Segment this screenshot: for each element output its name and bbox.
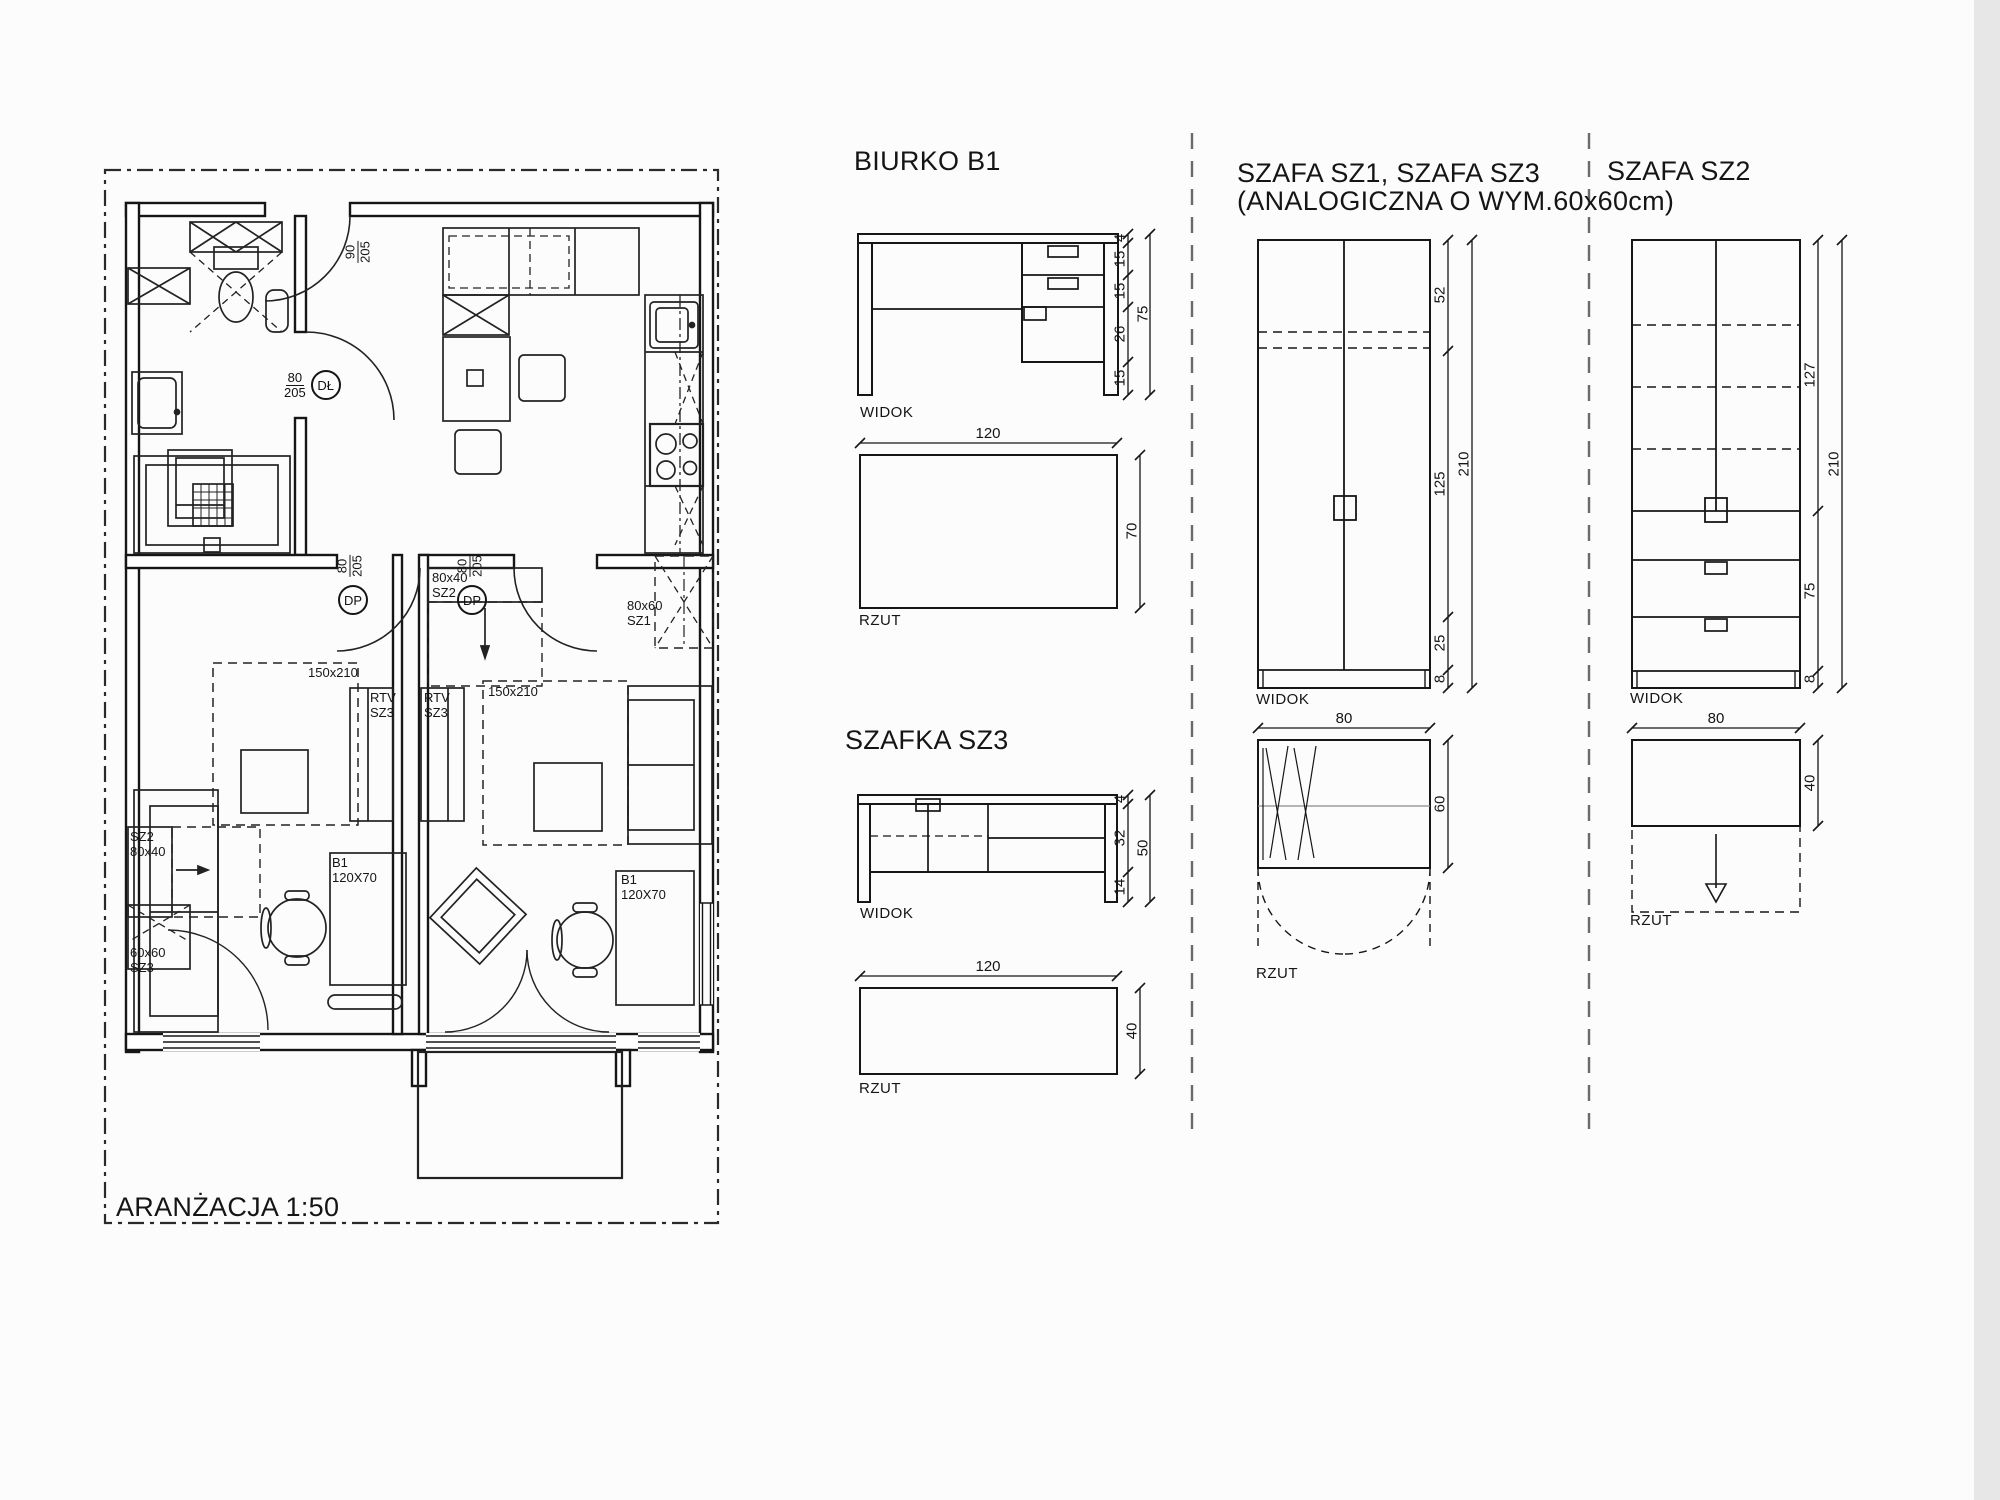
left-room-furniture — [128, 450, 406, 1032]
szafka-widok — [858, 795, 1117, 902]
window-left-room — [163, 1033, 260, 1051]
szafa1-title-line1: SZAFA SZ1, SZAFA SZ3 — [1237, 158, 1540, 188]
szafa2-h0: 127 — [1802, 362, 1819, 387]
biurko-depth-dim: 70 — [1124, 523, 1141, 540]
szafa2-widok — [1632, 240, 1800, 688]
szafka-h0: 4 — [1112, 795, 1129, 803]
desk-left-label: B1 120X70 — [332, 855, 377, 885]
walls — [126, 203, 713, 1086]
cabinet-sz3-line2: SZ3 — [130, 960, 165, 975]
szafa1-h1: 125 — [1432, 471, 1449, 496]
desk-right-label: B1 120X70 — [621, 872, 666, 902]
szafa1-total-height: 210 — [1456, 451, 1473, 476]
entry-door-height: 205 — [358, 241, 373, 263]
wardrobe-sz1-line1: 80x60 — [627, 598, 662, 613]
drawing-sheet: 90 205 80 205 DŁ 80 205 DP 80 205 DP RTV… — [0, 0, 2000, 1500]
szafa2-rzut — [1632, 740, 1800, 912]
desk-left-line2: 120X70 — [332, 870, 377, 885]
bed-right-label: 150x210 — [488, 684, 538, 699]
bathroom-door-size: 80 205 — [284, 371, 306, 400]
cabinet-sz3-line1: 60x60 — [130, 945, 165, 960]
bathroom-door-label: 80 205 DŁ — [284, 370, 341, 400]
dimension-lines — [860, 234, 1842, 1074]
left-room-door-code: DP — [338, 585, 368, 615]
biurko-h4: 15 — [1112, 370, 1129, 387]
szafa1-h2: 25 — [1432, 635, 1449, 652]
bathroom-door-width: 80 — [286, 371, 304, 386]
szafka-depth-dim: 40 — [1124, 1023, 1141, 1040]
cabinet-sz3-left-label: 60x60 SZ3 — [130, 945, 165, 975]
szafa2-depth-dim: 40 — [1802, 775, 1819, 792]
biurko-view-label: WIDOK — [860, 405, 913, 421]
right-room-door-height: 205 — [470, 555, 485, 577]
left-room-door-height: 205 — [350, 555, 365, 577]
szafa2-title: SZAFA SZ2 — [1607, 156, 1751, 186]
szafka-total-height: 50 — [1135, 840, 1152, 857]
rtv-left-line1: RTV — [370, 690, 396, 705]
szafa2-h1: 75 — [1802, 583, 1819, 600]
right-room-furniture — [421, 556, 713, 1005]
szafka-h2: 14 — [1112, 879, 1129, 896]
biurko-h1: 15 — [1112, 251, 1129, 268]
scan-edge-band — [1974, 0, 2000, 1500]
bathroom-door-height: 205 — [284, 386, 306, 400]
szafka-rzut — [860, 988, 1117, 1074]
szafa1-title-line2: (ANALOGICZNA O WYM.60x60cm) — [1237, 186, 1674, 216]
szafa2-width-dim: 80 — [1708, 710, 1725, 727]
szafka-plan-label: RZUT — [859, 1081, 901, 1097]
wardrobe-sz2-left-label: SZ2 80x40 — [130, 829, 165, 859]
szafa2-total-height: 210 — [1826, 451, 1843, 476]
wardrobe-sz2-left-line2: 80x40 — [130, 844, 165, 859]
biurko-h3: 26 — [1112, 326, 1129, 343]
window-right-room-bottom — [638, 1033, 700, 1051]
window-balcony-door — [426, 1033, 616, 1051]
biurko-rzut — [860, 455, 1117, 608]
desk-left-line1: B1 — [332, 855, 377, 870]
rtv-left-line2: SZ3 — [370, 705, 396, 720]
szafa1-rzut — [1258, 740, 1430, 954]
rtv-cabinet-left-label: RTV SZ3 — [370, 690, 396, 720]
szafka-view-label: WIDOK — [860, 906, 913, 922]
szafa2-view-label: WIDOK — [1630, 691, 1683, 707]
dimension-ticks — [855, 229, 1847, 1079]
shelf-sz2-label: 80x40 SZ2 — [432, 570, 467, 600]
biurko-widok — [858, 234, 1118, 395]
wardrobe-sz2-left-line1: SZ2 — [130, 829, 165, 844]
balcony — [418, 1052, 622, 1178]
szafka-title: SZAFKA SZ3 — [845, 725, 1009, 755]
entry-door-label: 90 205 — [344, 241, 373, 263]
biurko-h0: 4 — [1112, 234, 1129, 242]
biurko-h2: 15 — [1112, 283, 1129, 300]
bathroom-fixtures — [128, 222, 290, 553]
bathroom-door-code: DŁ — [311, 370, 341, 400]
wardrobe-sz1-line2: SZ1 — [627, 613, 662, 628]
left-room-door-width: 80 — [336, 555, 351, 577]
szafka-width-dim: 120 — [975, 958, 1000, 975]
kitchen-units — [443, 228, 703, 553]
biurko-total-height: 75 — [1135, 306, 1152, 323]
szafa1-view-label: WIDOK — [1256, 692, 1309, 708]
biurko-width-dim: 120 — [975, 425, 1000, 442]
shelf-sz2-line2: SZ2 — [432, 585, 467, 600]
window-right-wall — [700, 903, 713, 1005]
szafa1-plan-label: RZUT — [1256, 966, 1298, 982]
szafa1-h0: 52 — [1432, 287, 1449, 304]
desk-right-line1: B1 — [621, 872, 666, 887]
bed-left-label: 150x210 — [308, 665, 358, 680]
rtv-right-line1: RTV — [424, 690, 450, 705]
szafa1-h3: 8 — [1432, 675, 1449, 683]
desk-right-line2: 120X70 — [621, 887, 666, 902]
shelf-sz2-line1: 80x40 — [432, 570, 467, 585]
rtv-right-line2: SZ3 — [424, 705, 450, 720]
biurko-title: BIURKO B1 — [854, 146, 1001, 176]
szafa1-widok — [1258, 240, 1430, 688]
biurko-plan-label: RZUT — [859, 613, 901, 629]
left-room-door-size: 80 205 — [336, 555, 365, 577]
szafa1-width-dim: 80 — [1336, 710, 1353, 727]
wardrobe-sz1-label: 80x60 SZ1 — [627, 598, 662, 628]
rtv-cabinet-right-label: RTV SZ3 — [424, 690, 450, 720]
szafka-h1: 32 — [1112, 830, 1129, 847]
szafa1-depth-dim: 60 — [1432, 796, 1449, 813]
door-arcs — [168, 216, 609, 1032]
szafa2-plan-label: RZUT — [1630, 913, 1672, 929]
szafa2-h2: 8 — [1802, 675, 1819, 683]
plan-title: ARANŻACJA 1:50 — [116, 1192, 339, 1222]
entry-door-width: 90 — [344, 241, 359, 263]
